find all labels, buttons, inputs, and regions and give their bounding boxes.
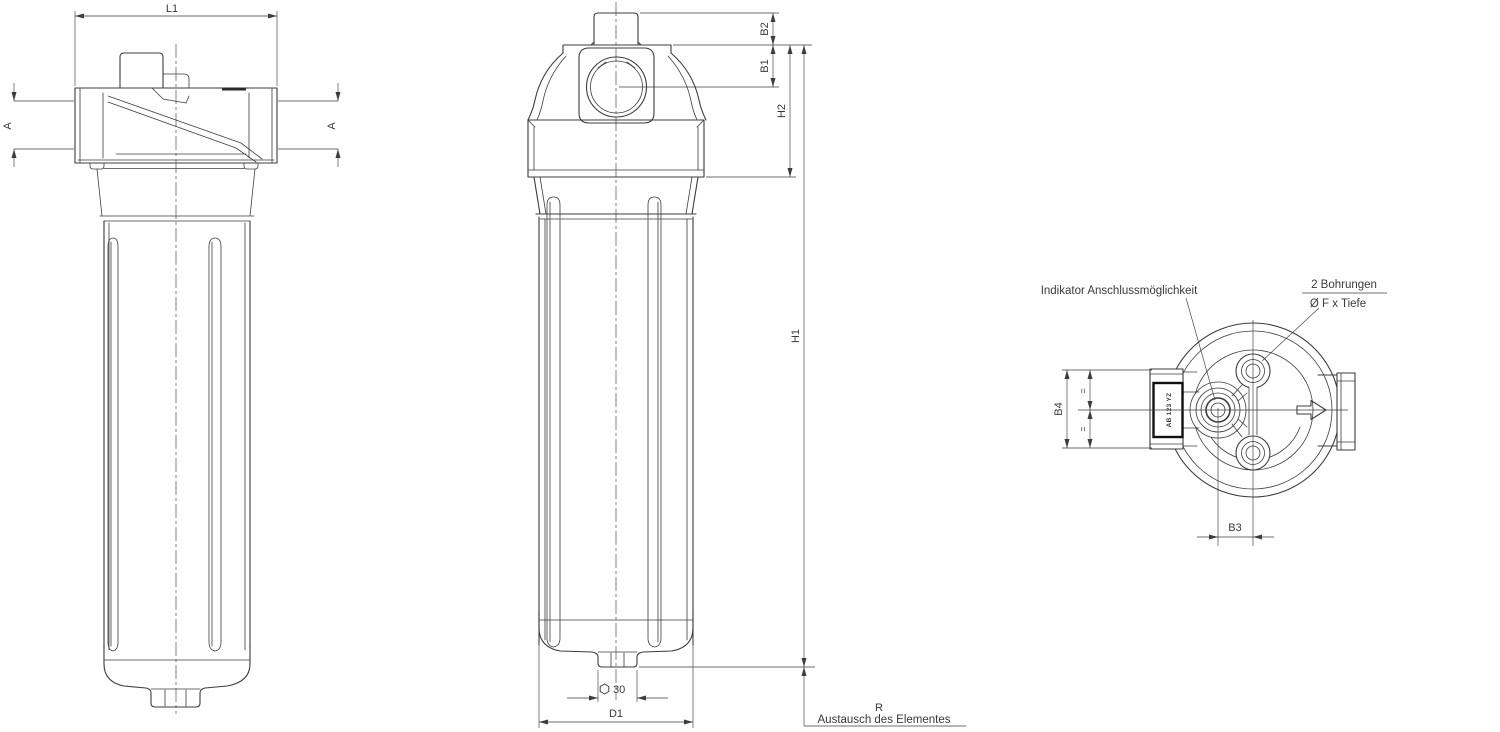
- front-port-notches: [598, 62, 635, 68]
- side-view-dimensions: L1 A A: [2, 3, 341, 167]
- front-view: [528, 2, 706, 700]
- side-bowl-walls: [104, 221, 250, 648]
- front-drain-stub: [598, 652, 637, 667]
- dim-label-b3: B3: [1228, 522, 1241, 534]
- dim-label-hex-size: 30: [613, 684, 625, 696]
- note-bolt-holes-count: 2 Bohrungen: [1311, 279, 1377, 291]
- dim-label-a-right: A: [326, 122, 338, 130]
- side-drain-stub: [151, 689, 200, 706]
- dim-label-b4: B4: [1053, 402, 1065, 415]
- dim-label-r: R: [875, 702, 883, 714]
- side-bowl-inner: [104, 223, 250, 660]
- dim-label-b1: B1: [759, 59, 771, 72]
- side-view: [75, 44, 277, 714]
- drawing-canvas: L1 A A B2: [0, 0, 1500, 732]
- dim-label-h1: H1: [790, 329, 802, 343]
- dim-a-left: [14, 83, 74, 167]
- side-top-stub: [120, 53, 163, 88]
- dim-label-equal-upper: =: [1078, 388, 1088, 393]
- dim-label-equal-lower: =: [1078, 426, 1088, 431]
- front-shoulders: [563, 45, 671, 53]
- dim-b4-extensions: [1062, 370, 1152, 448]
- dim-label-d1: D1: [609, 708, 623, 720]
- dim-label-l1: L1: [166, 3, 178, 15]
- note-indicator-port: Indikator Anschlussmöglichkeit: [1041, 285, 1198, 297]
- dim-label-a-left: A: [2, 122, 14, 130]
- top-view: AB 123 YZ: [1078, 320, 1355, 546]
- front-clamp-rib-right: [648, 197, 661, 647]
- hex-across-flats-icon: [600, 684, 609, 694]
- side-bowl-bottom: [104, 645, 250, 707]
- leader-bolt-holes: [1262, 308, 1319, 361]
- front-clamp-rib-left: [547, 197, 560, 647]
- dim-label-b2: B2: [759, 22, 771, 35]
- dim-label-h2: H2: [776, 104, 788, 118]
- front-dome-outer: [528, 53, 706, 120]
- note-element-replacement: Austausch des Elementes: [818, 714, 951, 726]
- side-clamp-rib-right: [209, 238, 221, 651]
- side-clamp-rib-left: [108, 238, 118, 651]
- front-dome-inner: [537, 56, 697, 120]
